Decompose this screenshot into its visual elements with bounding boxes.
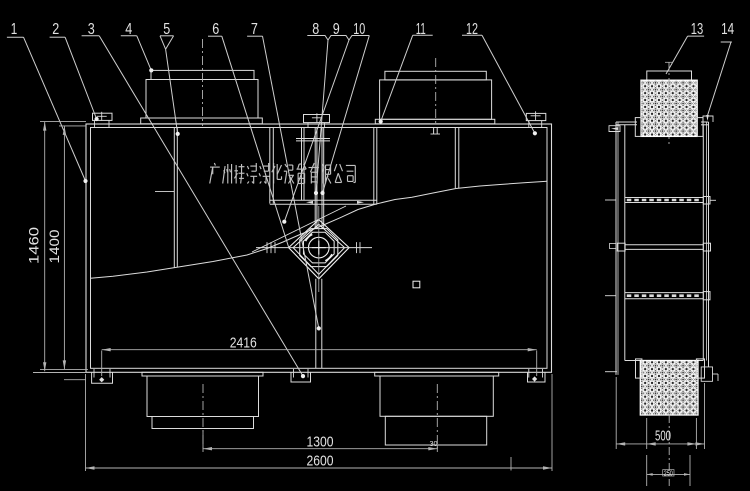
svg-text:1300: 1300: [307, 433, 334, 450]
svg-text:5: 5: [163, 21, 170, 38]
svg-text:2: 2: [52, 21, 59, 38]
svg-text:30: 30: [430, 441, 438, 448]
svg-text:4: 4: [125, 21, 132, 38]
svg-text:1: 1: [11, 21, 18, 38]
svg-text:14: 14: [721, 21, 734, 38]
svg-text:13: 13: [691, 21, 704, 38]
svg-text:1460: 1460: [27, 227, 42, 264]
svg-text:9: 9: [333, 21, 340, 38]
svg-text:7: 7: [251, 21, 258, 38]
svg-text:250: 250: [664, 470, 673, 477]
svg-text:6: 6: [212, 21, 219, 38]
svg-text:10: 10: [353, 21, 365, 38]
svg-text:8: 8: [312, 21, 319, 38]
svg-text:500: 500: [655, 427, 671, 444]
svg-text:12: 12: [466, 21, 478, 38]
svg-text:2416: 2416: [230, 335, 257, 352]
svg-text:1400: 1400: [47, 230, 62, 264]
svg-text:3: 3: [88, 21, 95, 38]
svg-text:2600: 2600: [307, 452, 334, 469]
svg-text:11: 11: [416, 21, 426, 38]
